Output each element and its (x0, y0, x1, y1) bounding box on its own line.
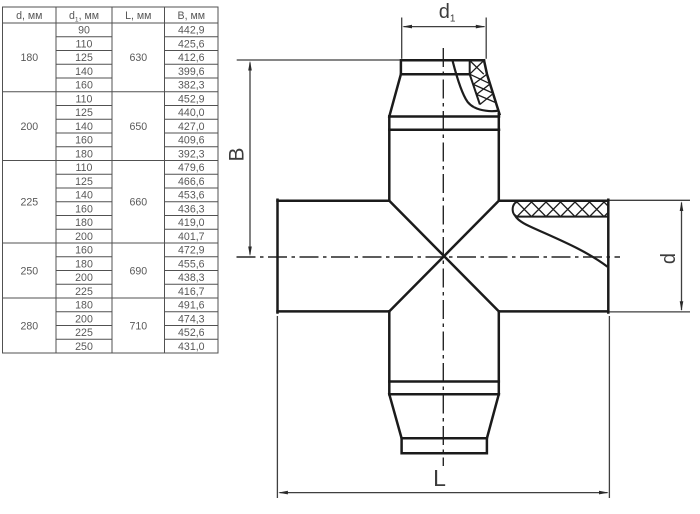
svg-text:250: 250 (75, 341, 93, 353)
svg-text:452,6: 452,6 (178, 327, 205, 339)
svg-text:125: 125 (75, 176, 93, 188)
svg-text:479,6: 479,6 (178, 162, 205, 174)
svg-text:110: 110 (76, 93, 93, 105)
svg-text:d: d (658, 253, 680, 264)
svg-text:180: 180 (20, 52, 38, 64)
svg-text:440,0: 440,0 (178, 107, 205, 119)
svg-text:200: 200 (75, 272, 93, 284)
svg-text:200: 200 (20, 121, 38, 133)
svg-text:160: 160 (75, 245, 93, 257)
svg-text:225: 225 (75, 286, 93, 298)
svg-text:225: 225 (20, 197, 38, 209)
svg-text:453,6: 453,6 (178, 190, 205, 202)
svg-text:392,3: 392,3 (178, 148, 205, 160)
svg-text:140: 140 (75, 121, 93, 133)
svg-text:452,9: 452,9 (178, 93, 205, 105)
svg-text:110: 110 (76, 162, 93, 174)
svg-text:160: 160 (75, 135, 93, 147)
svg-text:442,9: 442,9 (178, 25, 205, 37)
svg-text:180: 180 (75, 258, 93, 270)
svg-text:d1, мм: d1, мм (69, 10, 99, 23)
svg-text:180: 180 (75, 217, 93, 229)
svg-text:160: 160 (75, 80, 93, 92)
svg-text:90: 90 (78, 25, 90, 37)
svg-text:427,0: 427,0 (178, 121, 205, 133)
svg-text:250: 250 (20, 265, 38, 277)
svg-text:419,0: 419,0 (178, 217, 205, 229)
svg-text:B, мм: B, мм (178, 10, 206, 22)
svg-text:125: 125 (75, 107, 93, 119)
svg-text:466,6: 466,6 (178, 176, 205, 188)
svg-text:382,3: 382,3 (178, 80, 205, 92)
svg-text:436,3: 436,3 (178, 203, 205, 215)
svg-text:180: 180 (75, 148, 93, 160)
svg-text:425,6: 425,6 (178, 38, 205, 50)
svg-text:650: 650 (129, 121, 147, 133)
svg-text:110: 110 (76, 38, 93, 50)
svg-text:438,3: 438,3 (178, 272, 205, 284)
svg-text:409,6: 409,6 (178, 135, 205, 147)
svg-text:455,6: 455,6 (178, 258, 205, 270)
svg-text:L, мм: L, мм (125, 10, 151, 22)
svg-text:280: 280 (20, 320, 38, 332)
svg-text:416,7: 416,7 (178, 286, 205, 298)
svg-text:630: 630 (129, 52, 147, 64)
svg-text:225: 225 (75, 327, 93, 339)
svg-text:d1: d1 (439, 1, 456, 25)
svg-text:401,7: 401,7 (178, 231, 205, 243)
svg-text:140: 140 (75, 66, 93, 78)
svg-text:399,6: 399,6 (178, 66, 205, 78)
svg-text:491,6: 491,6 (178, 300, 205, 312)
svg-text:180: 180 (75, 300, 93, 312)
svg-text:660: 660 (129, 197, 147, 209)
svg-text:474,3: 474,3 (178, 313, 205, 325)
svg-text:412,6: 412,6 (178, 52, 205, 64)
svg-text:125: 125 (75, 52, 93, 64)
svg-text:710: 710 (129, 320, 147, 332)
svg-text:200: 200 (75, 313, 93, 325)
svg-text:B: B (226, 147, 249, 161)
svg-text:200: 200 (75, 231, 93, 243)
svg-text:431,0: 431,0 (178, 341, 205, 353)
svg-text:690: 690 (129, 265, 147, 277)
svg-text:d, мм: d, мм (16, 10, 42, 22)
svg-text:472,9: 472,9 (178, 245, 205, 257)
svg-text:L: L (433, 465, 446, 491)
svg-text:160: 160 (75, 203, 93, 215)
svg-text:140: 140 (75, 190, 93, 202)
